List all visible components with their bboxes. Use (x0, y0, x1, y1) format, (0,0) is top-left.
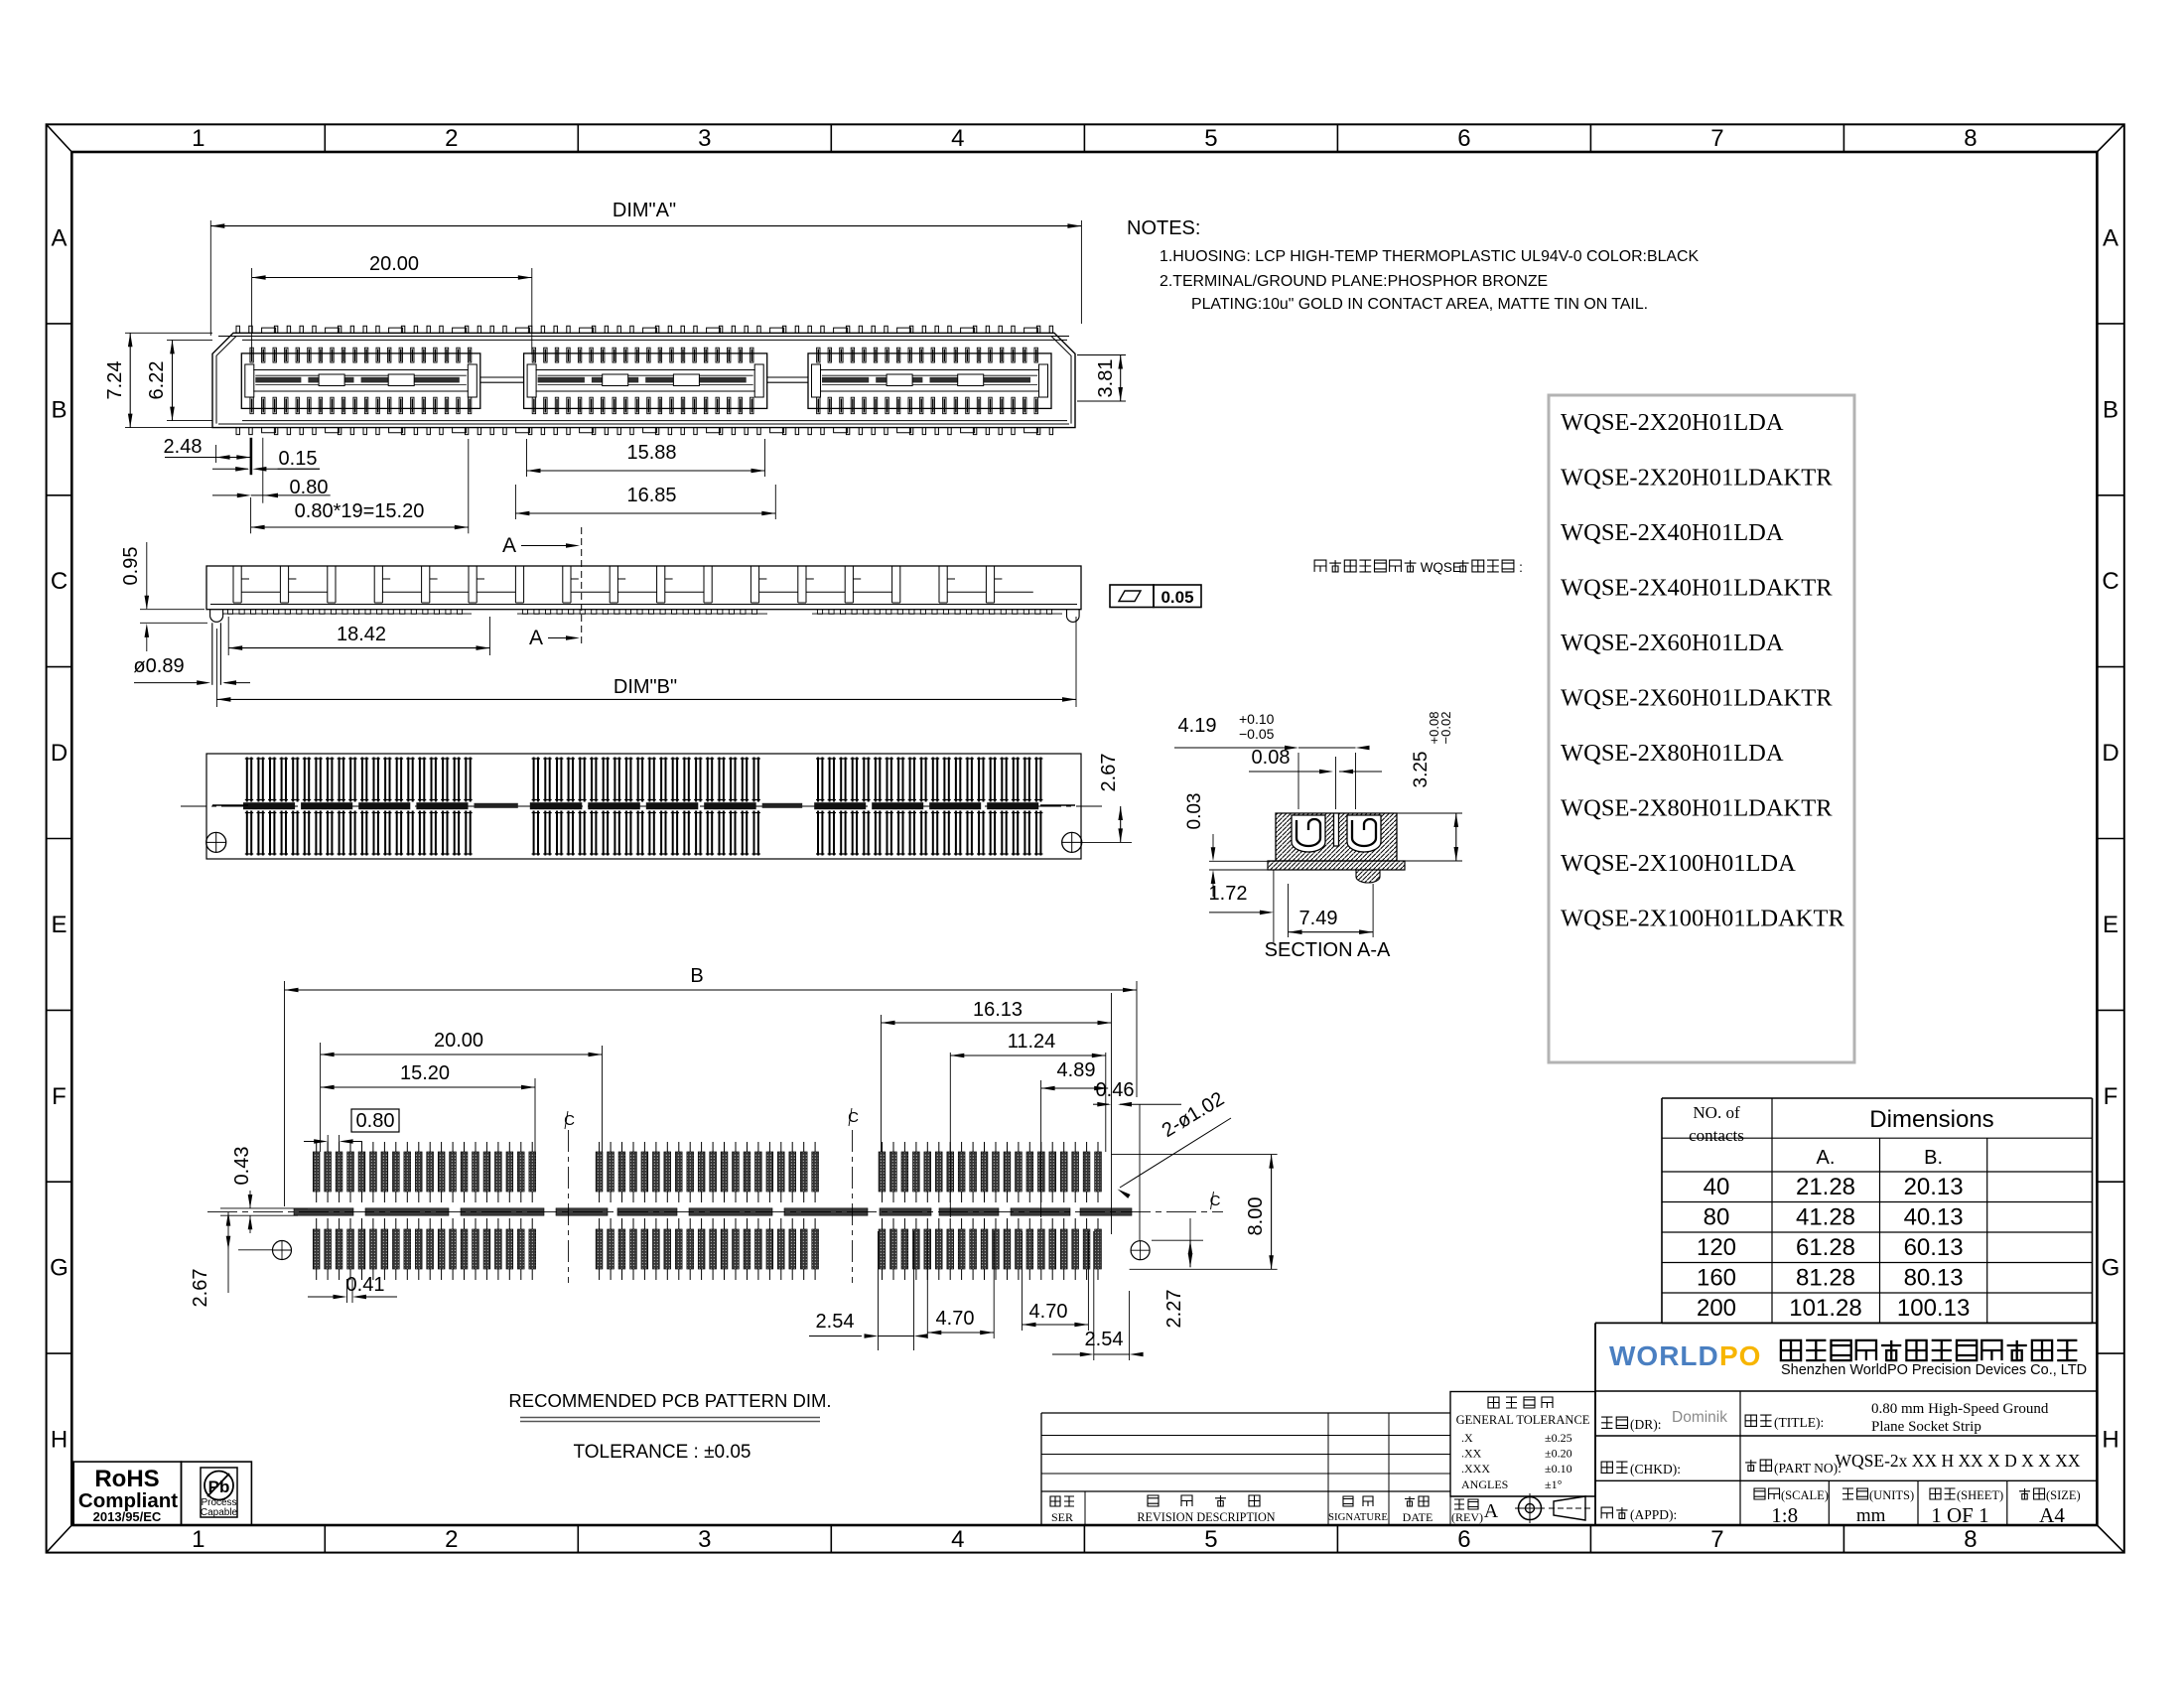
svg-text:E: E (2103, 912, 2118, 938)
svg-text:11.24: 11.24 (1008, 1031, 1056, 1053)
svg-text:120: 120 (1697, 1234, 1736, 1261)
svg-text:GENERAL TOLERANCE: GENERAL TOLERANCE (1456, 1413, 1590, 1427)
svg-text:DATE: DATE (1403, 1510, 1433, 1524)
svg-text:+0.10: +0.10 (1239, 711, 1275, 727)
svg-text:16.13: 16.13 (973, 999, 1023, 1021)
svg-text:0.08: 0.08 (1252, 747, 1291, 769)
svg-text:Shenzhen WorldPO Precision Dev: Shenzhen WorldPO Precision Devices Co., … (1781, 1362, 2087, 1378)
svg-text:WORLD: WORLD (1609, 1340, 1719, 1371)
svg-text:8: 8 (1964, 125, 1977, 152)
svg-text:B.: B. (1924, 1147, 1943, 1169)
svg-text:.X: .X (1461, 1431, 1473, 1445)
svg-text:5: 5 (1204, 125, 1217, 152)
svg-text:(CHKD):: (CHKD): (1630, 1462, 1681, 1477)
svg-text:(PART NO):: (PART NO): (1774, 1461, 1842, 1476)
svg-text:H: H (2102, 1427, 2118, 1454)
svg-text:E: E (51, 912, 67, 938)
svg-text:21.28: 21.28 (1796, 1174, 1855, 1200)
svg-text:G: G (2102, 1255, 2120, 1282)
svg-text:A.: A. (1817, 1147, 1836, 1169)
svg-text:20.13: 20.13 (1904, 1174, 1964, 1200)
svg-text:15.88: 15.88 (626, 442, 676, 464)
svg-text:8: 8 (1964, 1526, 1977, 1553)
svg-text:PO: PO (1719, 1340, 1761, 1371)
svg-text:100.13: 100.13 (1897, 1295, 1970, 1322)
svg-text:B: B (2103, 396, 2118, 423)
svg-text:C: C (51, 568, 68, 595)
svg-text:RECOMMENDED PCB PATTERN DIM.: RECOMMENDED PCB PATTERN DIM. (508, 1390, 831, 1411)
svg-text:A: A (51, 224, 67, 251)
svg-text:RoHS: RoHS (94, 1466, 159, 1492)
svg-text:A4: A4 (2039, 1503, 2065, 1527)
svg-text:2.27: 2.27 (1163, 1290, 1185, 1329)
svg-text:4.19: 4.19 (1178, 715, 1217, 737)
svg-text:200: 200 (1697, 1295, 1736, 1322)
svg-text:REVISION DESCRIPTION: REVISION DESCRIPTION (1137, 1510, 1275, 1524)
svg-text:A: A (1484, 1500, 1499, 1522)
svg-text:4: 4 (951, 125, 964, 152)
svg-text:DIM"B": DIM"B" (614, 676, 677, 698)
svg-text:2.54: 2.54 (816, 1311, 855, 1333)
svg-text:0.41: 0.41 (346, 1274, 385, 1296)
svg-text:NO. of: NO. of (1693, 1103, 1740, 1122)
svg-text:WQSE-2X100H01LDAKTR: WQSE-2X100H01LDAKTR (1561, 906, 1844, 932)
svg-text:2: 2 (445, 1526, 458, 1553)
svg-text:1 OF 1: 1 OF 1 (1931, 1503, 1988, 1527)
svg-text:B: B (51, 396, 67, 423)
svg-text:1.72: 1.72 (1209, 883, 1248, 905)
svg-text:.XXX: .XXX (1461, 1462, 1490, 1476)
svg-text:D: D (51, 740, 68, 767)
svg-text:20.00: 20.00 (434, 1030, 483, 1052)
svg-text:1: 1 (192, 125, 205, 152)
svg-text:(REV): (REV) (1451, 1510, 1483, 1524)
svg-text:WQSE-2X60H01LDA: WQSE-2X60H01LDA (1561, 630, 1784, 656)
svg-text:WQSE-2X20H01LDAKTR: WQSE-2X20H01LDAKTR (1561, 465, 1833, 492)
svg-text:7: 7 (1710, 125, 1723, 152)
svg-text:4.70: 4.70 (936, 1308, 975, 1330)
svg-text:A: A (502, 534, 516, 557)
svg-text:40.13: 40.13 (1904, 1204, 1964, 1231)
svg-text:2.67: 2.67 (190, 1269, 211, 1308)
svg-text:8.00: 8.00 (1245, 1197, 1267, 1236)
svg-text:2.54: 2.54 (1085, 1329, 1124, 1350)
svg-text:6: 6 (1457, 125, 1470, 152)
svg-text:160: 160 (1697, 1265, 1736, 1292)
svg-text:−0.05: −0.05 (1239, 726, 1275, 742)
svg-text:(SHEET): (SHEET) (1957, 1488, 2003, 1502)
svg-text:3.25: 3.25 (1411, 752, 1432, 788)
svg-text:61.28: 61.28 (1796, 1234, 1855, 1261)
svg-text:WQSE: WQSE (1421, 560, 1461, 575)
svg-text:DIM"A": DIM"A" (613, 200, 676, 221)
svg-text:60.13: 60.13 (1904, 1234, 1964, 1261)
svg-text:contacts: contacts (1689, 1126, 1744, 1145)
svg-text:A: A (529, 627, 543, 649)
svg-text:2013/95/EC: 2013/95/EC (93, 1509, 162, 1524)
svg-text:F: F (2104, 1083, 2118, 1110)
svg-text:4: 4 (951, 1526, 964, 1553)
svg-text:.XX: .XX (1461, 1447, 1482, 1461)
svg-text:TOLERANCE : ±0.05: TOLERANCE : ±0.05 (573, 1442, 751, 1463)
svg-text:7.24: 7.24 (104, 361, 126, 400)
svg-text:2.TERMINAL/GROUND PLANE:PHOSPH: 2.TERMINAL/GROUND PLANE:PHOSPHOR BRONZE (1160, 273, 1548, 290)
svg-text:PLATING:10u" GOLD IN CONTACT A: PLATING:10u" GOLD IN CONTACT AREA, MATTE… (1191, 296, 1648, 313)
svg-text:4.89: 4.89 (1057, 1059, 1096, 1081)
svg-text:±0.20: ±0.20 (1545, 1447, 1572, 1461)
svg-text:WQSE-2X40H01LDAKTR: WQSE-2X40H01LDAKTR (1561, 575, 1833, 602)
svg-text:2: 2 (445, 125, 458, 152)
svg-text:0.46: 0.46 (1096, 1079, 1135, 1101)
svg-text:Dimensions: Dimensions (1869, 1106, 1993, 1133)
svg-text:0.80: 0.80 (356, 1110, 395, 1132)
svg-text:81.28: 81.28 (1796, 1265, 1855, 1292)
svg-text:(APPD):: (APPD): (1630, 1507, 1677, 1522)
svg-text:C: C (2102, 568, 2118, 595)
svg-text:SER: SER (1051, 1510, 1073, 1524)
svg-text:3: 3 (698, 1526, 711, 1553)
svg-text:SECTION A-A: SECTION A-A (1265, 939, 1391, 961)
svg-text:0.43: 0.43 (231, 1147, 253, 1186)
svg-text:D: D (2102, 740, 2118, 767)
svg-text:−0.02: −0.02 (1438, 712, 1453, 745)
svg-text:SIGNATURE: SIGNATURE (1328, 1511, 1388, 1523)
svg-text:±0.10: ±0.10 (1545, 1462, 1572, 1476)
svg-text:4.70: 4.70 (1029, 1301, 1068, 1323)
svg-text:ANGLES: ANGLES (1461, 1477, 1508, 1491)
svg-text:0.95: 0.95 (120, 547, 142, 586)
svg-text:Dominik: Dominik (1672, 1409, 1727, 1426)
svg-text:7.49: 7.49 (1299, 908, 1338, 929)
svg-text:1.HUOSING: LCP HIGH-TEMP THERM: 1.HUOSING: LCP HIGH-TEMP THERMOPLASTIC U… (1160, 248, 1699, 265)
svg-text:NOTES:: NOTES: (1127, 217, 1200, 239)
svg-text:WQSE-2x XX H XX X D X X XX: WQSE-2x XX H XX X D X X XX (1836, 1451, 2081, 1471)
svg-text:7: 7 (1710, 1526, 1723, 1553)
svg-text:0.80 mm High-Speed Ground: 0.80 mm High-Speed Ground (1871, 1401, 2049, 1417)
svg-text:(SIZE): (SIZE) (2046, 1488, 2081, 1502)
svg-text::: : (1519, 560, 1523, 575)
svg-text:80: 80 (1704, 1204, 1730, 1231)
svg-text:1: 1 (192, 1526, 205, 1553)
svg-text:Plane Socket Strip: Plane Socket Strip (1871, 1419, 1981, 1435)
svg-text:6.22: 6.22 (146, 361, 168, 400)
svg-text:(SCALE): (SCALE) (1781, 1488, 1829, 1502)
svg-text:±0.25: ±0.25 (1545, 1431, 1572, 1445)
svg-text:0.80*19=15.20: 0.80*19=15.20 (295, 500, 425, 522)
svg-text:(TITLE):: (TITLE): (1774, 1415, 1824, 1430)
svg-text:B: B (690, 965, 703, 987)
svg-text:80.13: 80.13 (1904, 1265, 1964, 1292)
svg-text:ø0.89: ø0.89 (133, 655, 184, 677)
svg-text:WQSE-2X80H01LDAKTR: WQSE-2X80H01LDAKTR (1561, 795, 1833, 822)
svg-text:H: H (51, 1427, 68, 1454)
svg-text:mm: mm (1856, 1505, 1886, 1526)
svg-text:±1°: ±1° (1545, 1477, 1563, 1491)
svg-text:40: 40 (1704, 1174, 1730, 1200)
svg-text:3.81: 3.81 (1095, 359, 1117, 398)
svg-text:WQSE-2X100H01LDA: WQSE-2X100H01LDA (1561, 850, 1796, 877)
svg-text:2.67: 2.67 (1098, 754, 1120, 792)
svg-text:0.05: 0.05 (1160, 588, 1193, 607)
svg-text:WQSE-2X80H01LDA: WQSE-2X80H01LDA (1561, 740, 1784, 767)
svg-text:16.85: 16.85 (626, 485, 676, 506)
svg-text:(DR):: (DR): (1630, 1417, 1662, 1432)
svg-text:Capable: Capable (201, 1507, 238, 1518)
svg-text:41.28: 41.28 (1796, 1204, 1855, 1231)
svg-text:G: G (50, 1255, 68, 1282)
svg-text:101.28: 101.28 (1789, 1295, 1861, 1322)
svg-text:6: 6 (1457, 1526, 1470, 1553)
svg-text:5: 5 (1204, 1526, 1217, 1553)
svg-text:WQSE-2X60H01LDAKTR: WQSE-2X60H01LDAKTR (1561, 685, 1833, 712)
svg-text:(UNITS): (UNITS) (1869, 1488, 1914, 1502)
svg-text:18.42: 18.42 (337, 624, 386, 645)
svg-text:3: 3 (698, 125, 711, 152)
svg-text:WQSE-2X20H01LDA: WQSE-2X20H01LDA (1561, 409, 1784, 436)
svg-text:15.20: 15.20 (400, 1062, 450, 1084)
svg-text:WQSE-2X40H01LDA: WQSE-2X40H01LDA (1561, 519, 1784, 546)
svg-text:0.15: 0.15 (279, 448, 318, 470)
svg-text:2.48: 2.48 (164, 436, 203, 458)
svg-text:A: A (2103, 224, 2118, 251)
svg-text:20.00: 20.00 (369, 253, 419, 275)
svg-text:0.03: 0.03 (1184, 793, 1205, 830)
svg-text:1:8: 1:8 (1771, 1503, 1798, 1527)
svg-text:F: F (52, 1083, 67, 1110)
